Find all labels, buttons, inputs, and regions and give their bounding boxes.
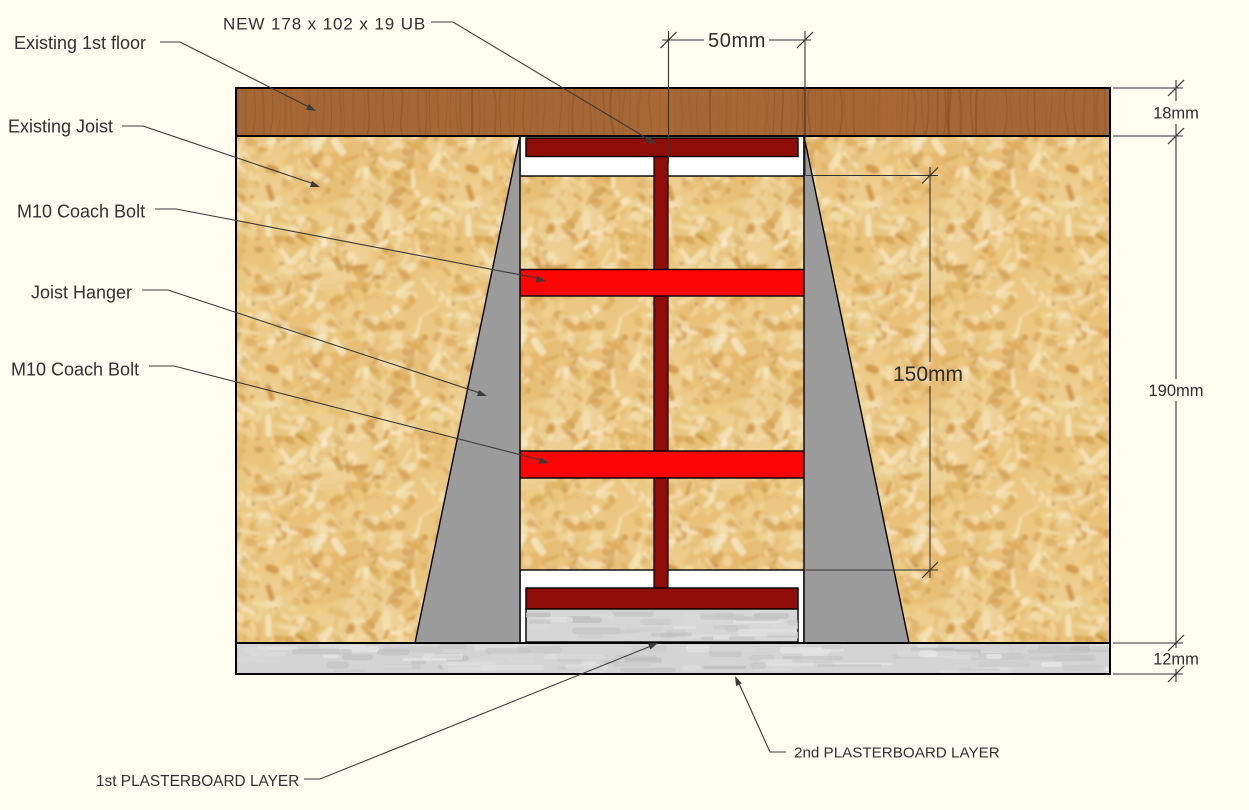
svg-text:Joist Hanger: Joist Hanger [31,283,132,303]
svg-text:1st PLASTERBOARD LAYER: 1st PLASTERBOARD LAYER [96,773,299,790]
svg-text:18mm: 18mm [1153,105,1199,123]
svg-text:50mm: 50mm [708,30,766,52]
svg-text:2nd PLASTERBOARD LAYER: 2nd PLASTERBOARD LAYER [794,745,1000,762]
svg-text:M10 Coach Bolt: M10 Coach Bolt [11,360,139,380]
svg-text:NEW 178 x 102 x 19 UB: NEW 178 x 102 x 19 UB [223,15,426,34]
svg-text:12mm: 12mm [1153,651,1199,669]
svg-text:M10 Coach Bolt: M10 Coach Bolt [17,202,145,222]
svg-text:Existing Joist: Existing Joist [8,117,113,137]
svg-text:150mm: 150mm [893,363,963,386]
svg-text:190mm: 190mm [1148,382,1203,400]
svg-text:Existing 1st floor: Existing 1st floor [14,33,146,53]
